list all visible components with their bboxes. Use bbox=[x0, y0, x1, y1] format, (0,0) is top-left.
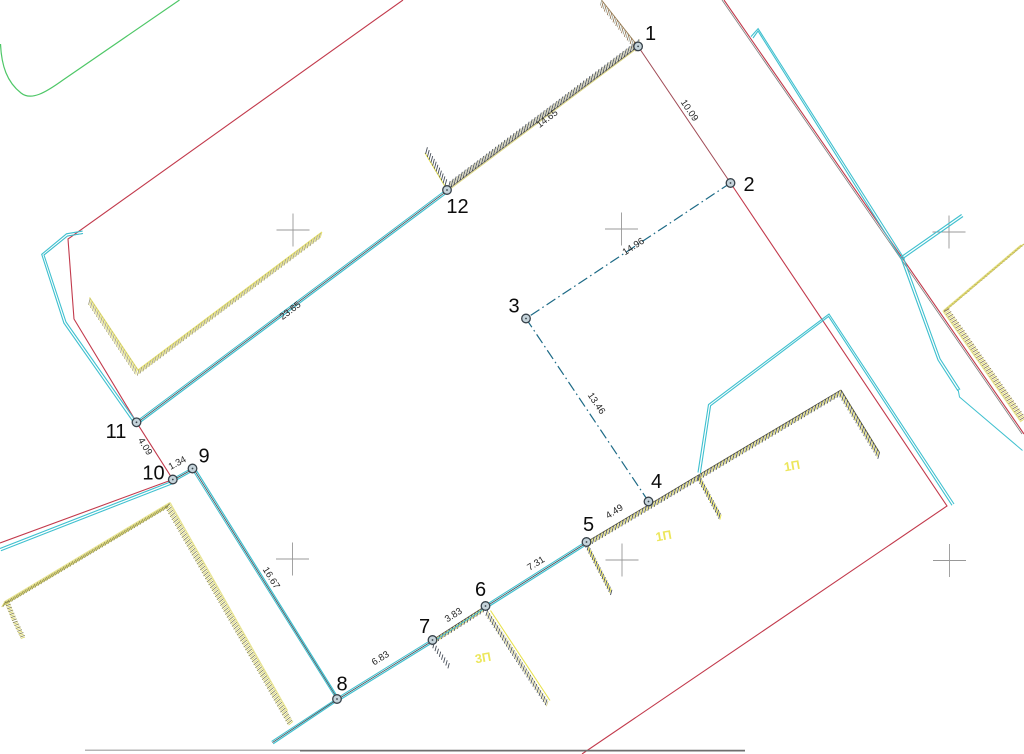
svg-text:1П: 1П bbox=[783, 458, 801, 475]
svg-text:5: 5 bbox=[583, 514, 594, 536]
svg-text:7: 7 bbox=[419, 616, 430, 638]
svg-text:3: 3 bbox=[508, 296, 519, 318]
svg-text:3П: 3П bbox=[474, 650, 492, 667]
svg-text:12: 12 bbox=[446, 196, 468, 218]
svg-text:2: 2 bbox=[743, 174, 754, 196]
svg-text:1П: 1П bbox=[655, 528, 673, 545]
svg-text:1: 1 bbox=[645, 23, 656, 45]
svg-text:6: 6 bbox=[475, 579, 486, 601]
svg-text:10: 10 bbox=[142, 463, 164, 485]
svg-text:8: 8 bbox=[336, 674, 347, 696]
svg-text:11: 11 bbox=[106, 421, 127, 443]
svg-text:4: 4 bbox=[651, 471, 662, 493]
svg-text:9: 9 bbox=[198, 446, 209, 468]
